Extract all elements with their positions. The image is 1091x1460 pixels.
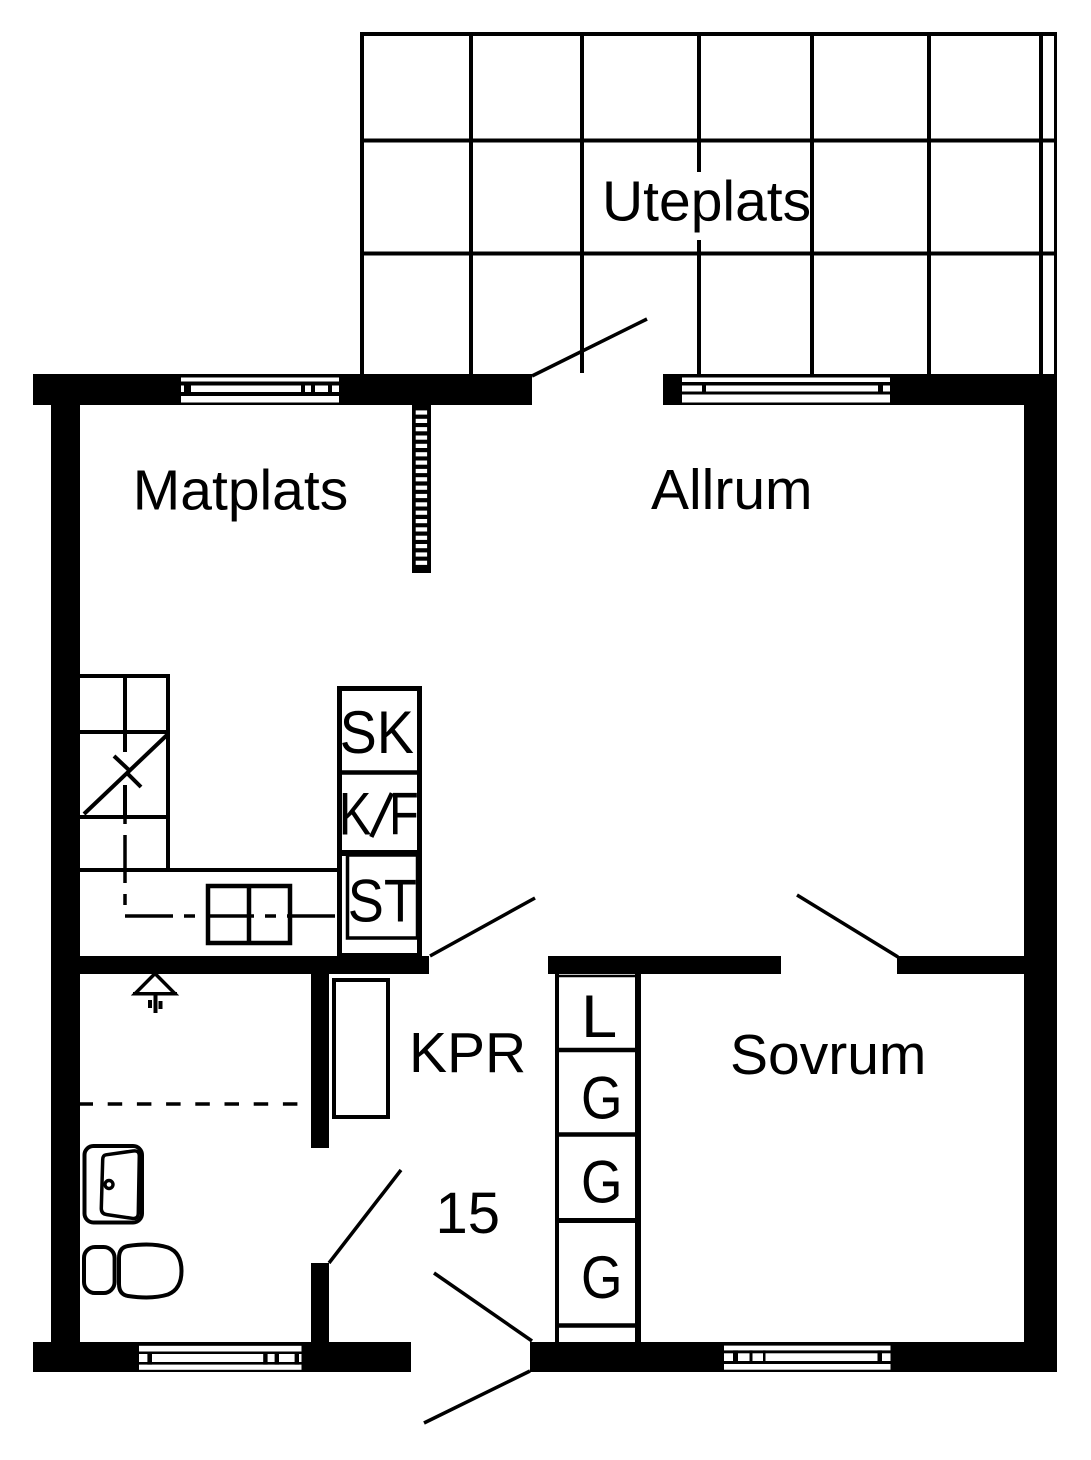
svg-text:L: L — [581, 983, 617, 1050]
svg-text:ST: ST — [348, 868, 417, 935]
svg-text:G: G — [581, 1149, 623, 1216]
svg-text:SK: SK — [340, 699, 414, 766]
svg-text:KPR: KPR — [409, 1021, 526, 1085]
svg-text:Uteplats: Uteplats — [602, 170, 811, 234]
svg-text:G: G — [581, 1244, 623, 1311]
svg-text:F: F — [389, 781, 419, 848]
svg-text:G: G — [581, 1065, 623, 1132]
svg-text:15: 15 — [436, 1181, 501, 1246]
svg-text:Allrum: Allrum — [651, 458, 813, 522]
svg-text:K: K — [339, 781, 372, 848]
svg-text:Sovrum: Sovrum — [730, 1023, 926, 1087]
svg-text:Matplats: Matplats — [133, 459, 348, 523]
